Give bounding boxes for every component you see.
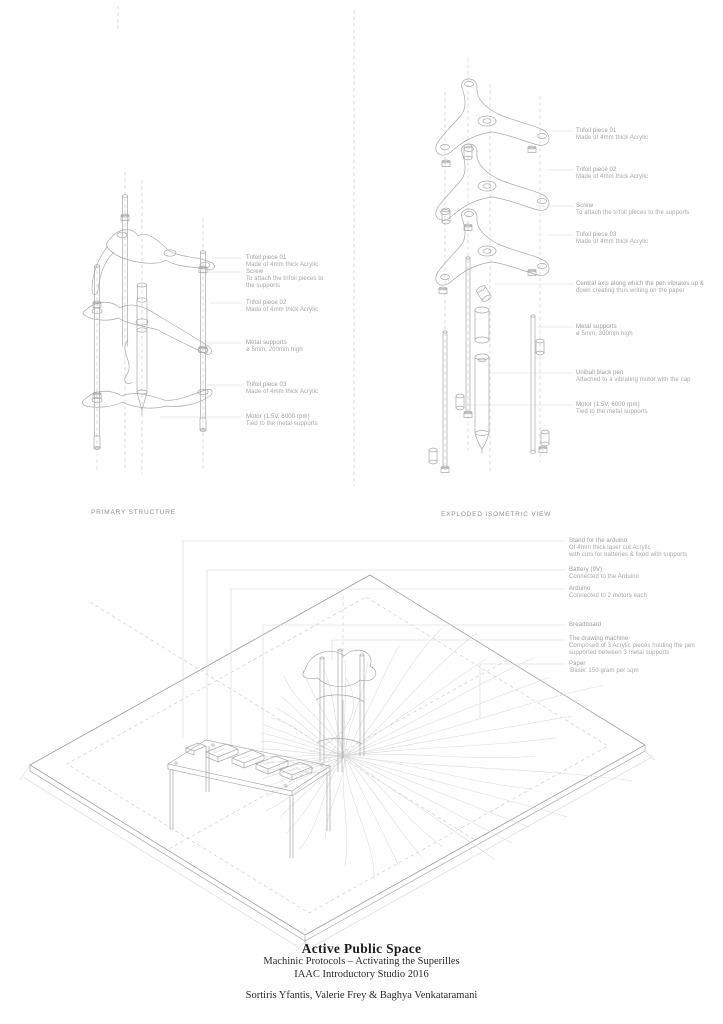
annotation: Battery (9V) Connected to the Arduino xyxy=(569,567,639,581)
annotation: Arduino Connected to 2 motors each xyxy=(569,586,647,600)
annotation: Metal supports ø 5mm, 300mm high xyxy=(576,324,633,338)
annotation: Stand for the arduino Of 4mm thick laser… xyxy=(569,538,687,559)
annotation: Trifoil piece 02 Made of 4mm thick Acryl… xyxy=(576,167,648,181)
primary-structure-drawing xyxy=(82,195,214,450)
poster-subtitle-1: Machinic Protocols – Activating the Supe… xyxy=(0,956,723,969)
annotation: Trifoil piece 03 Made of 4mm thick Acryl… xyxy=(576,232,648,246)
poster-authors: Sortiris Yfantis, Valerie Frey & Baghya … xyxy=(0,990,723,1001)
leader-lines xyxy=(160,131,573,417)
annotation: Screw To attach the trifoil pieces to th… xyxy=(576,203,689,217)
annotation: Trifoil piece 01 Made of 4mm thick Acryl… xyxy=(576,128,648,142)
annotation: Breadboard xyxy=(569,622,601,629)
poster-title: Active Public Space xyxy=(0,941,723,956)
annotation: Metal supports ø 5mm, 200mm high xyxy=(246,340,303,354)
annotation: The drawing machine Composed of 3 Acryli… xyxy=(569,636,695,657)
primary-structure-label: PRIMARY STRUCTURE xyxy=(91,509,176,516)
annotation: Screw To attach the trifoil pieces to th… xyxy=(246,269,323,290)
annotation: Central axis along which the pen vibrate… xyxy=(576,281,704,295)
annotation: Trifoil piece 02 Made of 4mm thick Acryl… xyxy=(246,300,318,314)
annotation: Trifoil piece 01 Made of 4mm thick Acryl… xyxy=(246,255,318,269)
annotation: Uniball black pen Attached to a vibratin… xyxy=(576,370,691,384)
annotation: Trifoil piece 03 Made of 4mm thick Acryl… xyxy=(246,382,318,396)
annotation: Paper 'Basik' 150 gram per sqm xyxy=(569,661,639,675)
exploded-view-label: EXPLODED ISOMETRIC VIEW xyxy=(441,511,551,518)
dimension-lines xyxy=(20,751,655,951)
poster-page: PRIMARY STRUCTURE EXPLODED ISOMETRIC VIE… xyxy=(0,0,723,1024)
poster-subtitle-2: IAAC Introductory Studio 2016 xyxy=(0,969,723,982)
exploded-view-drawing xyxy=(429,79,549,473)
annotation: Motor (1.5V, 6000 rpm) Tied to the metal… xyxy=(576,402,648,416)
annotation: Motor (1.5V, 6000 rpm) Tied to the metal… xyxy=(246,414,318,428)
assembly-drawing xyxy=(20,541,655,962)
paper-sheet xyxy=(30,575,645,962)
drawing-machine xyxy=(288,649,376,773)
title-block: Active Public Space Machinic Protocols –… xyxy=(0,941,723,1001)
